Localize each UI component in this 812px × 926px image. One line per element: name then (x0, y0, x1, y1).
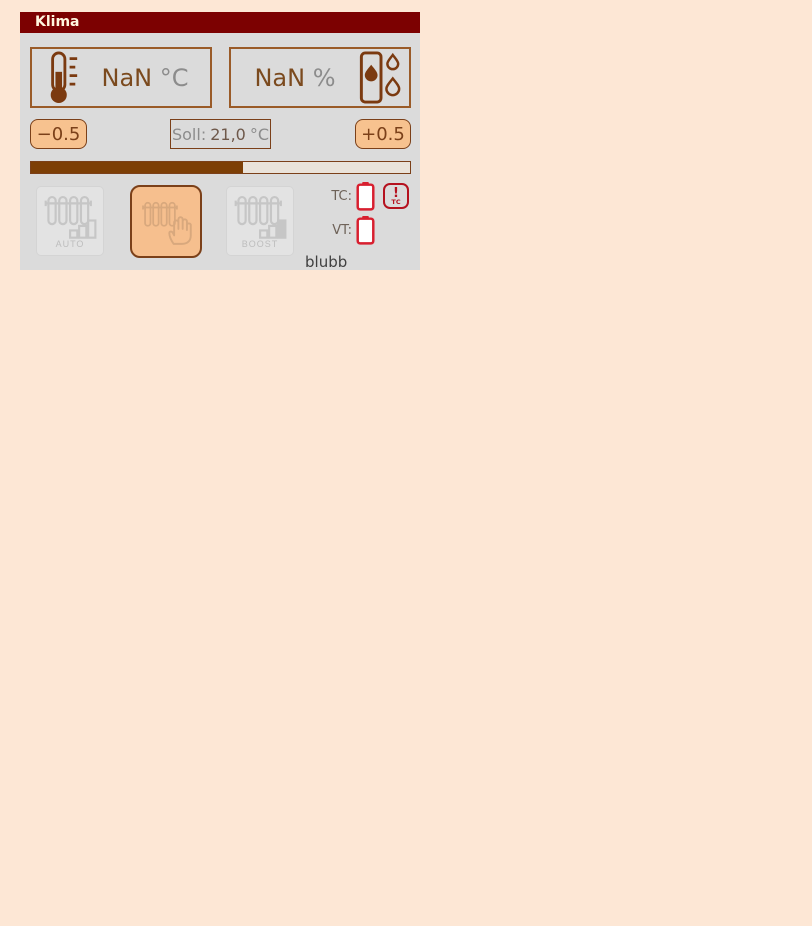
temperature-display: NaN °C (30, 47, 212, 108)
temperature-number: NaN (101, 64, 152, 92)
setpoint-prefix: Soll: (172, 125, 206, 144)
mode-auto-button[interactable]: AUTO (36, 186, 104, 256)
card-title: Klima (35, 14, 79, 30)
hand-icon (167, 214, 193, 249)
thermometer-icon (46, 50, 80, 105)
tc-status-row: TC: ! TC (300, 181, 409, 211)
humidity-icon (359, 51, 403, 104)
vt-battery-icon (356, 215, 375, 245)
vt-label: VT: (300, 223, 352, 238)
mode-boost-button[interactable]: BOOST (226, 186, 294, 256)
temperature-value: NaN °C (80, 64, 210, 92)
humidity-display: NaN % (229, 47, 411, 108)
footer-text: blubb (305, 253, 347, 271)
setpoint-unit: °C (250, 125, 269, 144)
humidity-unit: % (313, 64, 336, 92)
vt-status-row: VT: (300, 215, 375, 245)
warning-subtext: TC (391, 199, 400, 205)
card-header: Klima (20, 12, 420, 33)
increase-setpoint-button[interactable]: +0.5 (355, 119, 411, 149)
card-body: NaN °C NaN % −0.5 Soll: 21,0 (20, 33, 420, 270)
progress-fill (31, 162, 243, 173)
setpoint-value: 21,0 (210, 125, 246, 144)
valve-progress-bar (30, 161, 411, 174)
warning-exclamation: ! (393, 188, 399, 199)
tc-label: TC: (300, 189, 352, 204)
radiator-boost-icon (233, 193, 289, 242)
klima-card: Klima NaN °C NaN % (20, 12, 420, 270)
radiator-auto-icon (43, 193, 99, 242)
tc-battery-icon (356, 181, 375, 211)
mode-manual-button[interactable] (130, 185, 202, 258)
decrease-setpoint-button[interactable]: −0.5 (30, 119, 87, 149)
humidity-number: NaN (254, 64, 305, 92)
tc-warning-icon: ! TC (383, 183, 409, 209)
mode-auto-label: AUTO (37, 239, 103, 249)
humidity-value: NaN % (231, 64, 359, 92)
desktop-background: { "card": { "title": "Klima", "temperatu… (0, 0, 812, 926)
temperature-unit: °C (160, 64, 189, 92)
mode-boost-label: BOOST (227, 239, 293, 249)
setpoint-display: Soll: 21,0 °C (170, 119, 271, 149)
